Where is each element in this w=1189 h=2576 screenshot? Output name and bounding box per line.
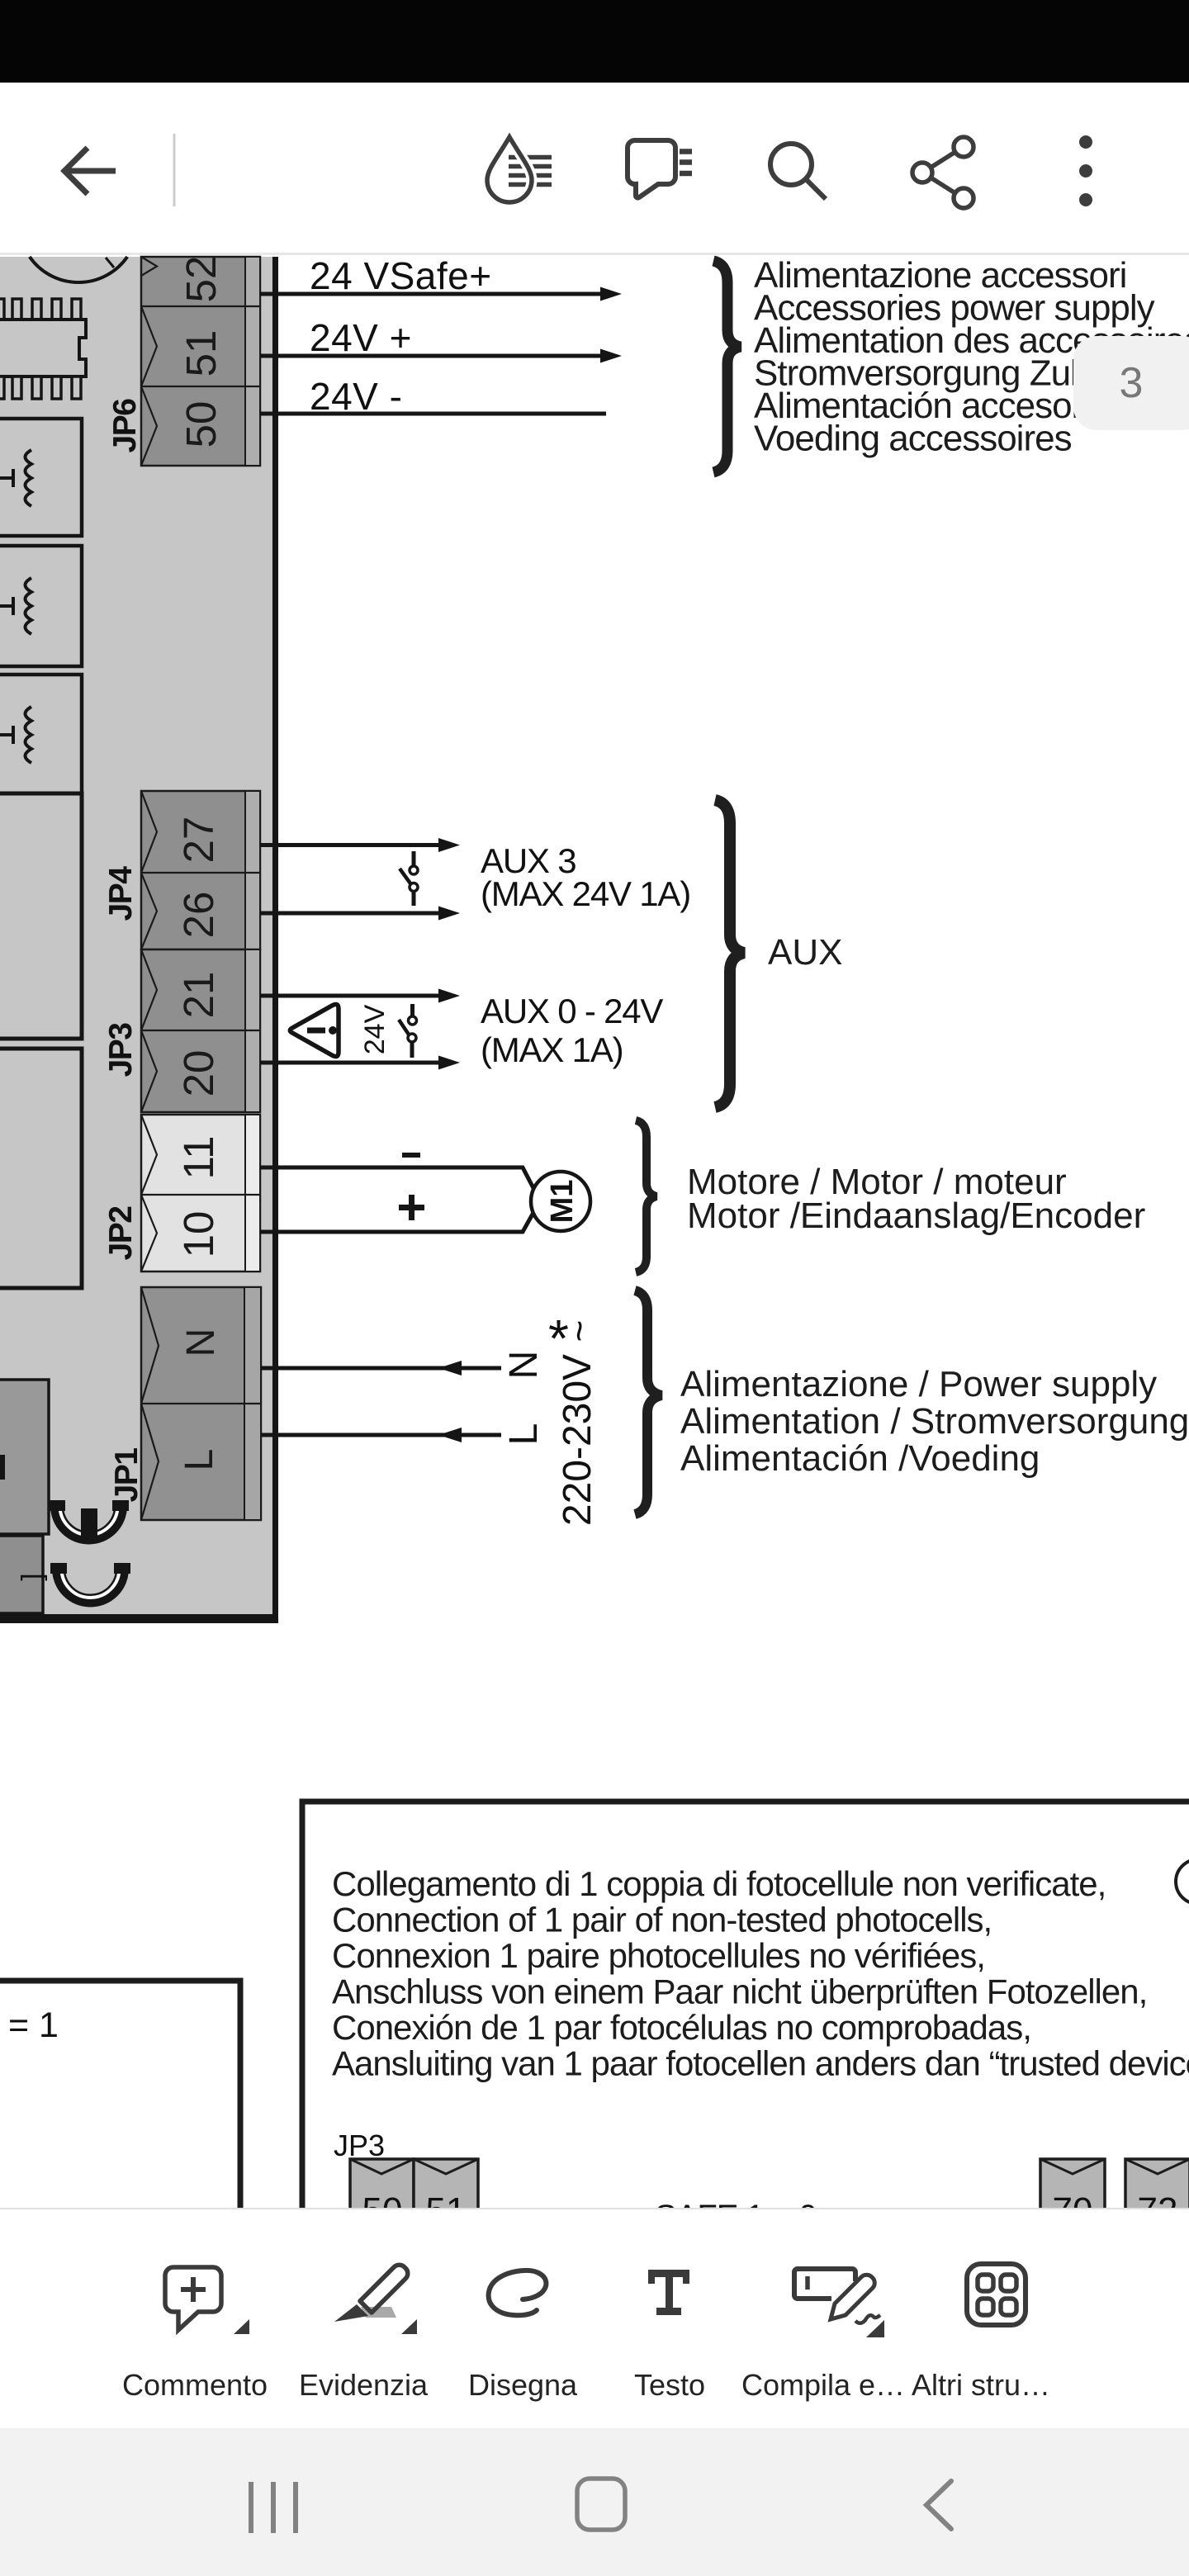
svg-text:]: ] <box>17 1573 48 1580</box>
svg-text:27: 27 <box>175 817 222 864</box>
svg-text:JP2: JP2 <box>103 1206 139 1261</box>
svg-text:52: 52 <box>178 256 225 303</box>
svg-text:Disegna: Disegna <box>468 2368 578 2402</box>
svg-text:Compila e…: Compila e… <box>741 2368 905 2402</box>
svg-text:JP6: JP6 <box>107 399 143 453</box>
svg-text:L: L <box>502 1423 546 1446</box>
svg-text:24V: 24V <box>359 1004 391 1054</box>
svg-text:Evidenzia: Evidenzia <box>299 2368 429 2402</box>
svg-text:AUX: AUX <box>768 932 842 973</box>
svg-text:Altri stru…: Altri stru… <box>912 2368 1050 2402</box>
svg-text:Connection of 1 pair of non-te: Connection of 1 pair of non-tested photo… <box>332 1901 992 1939</box>
svg-text:51: 51 <box>426 2190 467 2208</box>
svg-text:51: 51 <box>178 330 225 377</box>
svg-text:220-230V: 220-230V <box>556 1354 599 1526</box>
svg-text:Voeding accessoires: Voeding accessoires <box>754 419 1072 459</box>
svg-text:24V +: 24V + <box>310 316 412 359</box>
svg-text:JP3: JP3 <box>103 1023 139 1077</box>
svg-text:11: 11 <box>175 1136 222 1180</box>
svg-text:Connexion 1 paire photocellule: Connexion 1 paire photocellules no vérif… <box>332 1936 985 1975</box>
svg-text:Alimentación /Voeding: Alimentación /Voeding <box>680 1438 1040 1479</box>
svg-text:24V -: 24V - <box>310 375 402 418</box>
svg-text:20: 20 <box>175 1050 222 1097</box>
svg-text:Collegamento di 1 coppia di fo: Collegamento di 1 coppia di fotocellule … <box>332 1864 1106 1903</box>
svg-text:JP4: JP4 <box>103 866 139 921</box>
svg-text:AUX 0 - 24V: AUX 0 - 24V <box>481 992 663 1030</box>
svg-text:N: N <box>502 1351 546 1380</box>
svg-text:10: 10 <box>175 1211 222 1258</box>
svg-text:21: 21 <box>175 972 222 1019</box>
svg-text:Aansluiting van 1 paar fotocel: Aansluiting van 1 paar fotocellen anders… <box>332 2044 1189 2083</box>
svg-text:M1: M1 <box>545 1180 580 1224</box>
svg-text:N: N <box>179 1328 223 1357</box>
svg-text:= 1: = 1 <box>8 2005 59 2045</box>
svg-text:Alimentation / Stromversorgung: Alimentation / Stromversorgung <box>680 1401 1189 1442</box>
svg-text:Alimentazione / Power supply: Alimentazione / Power supply <box>680 1364 1157 1404</box>
svg-text:SAFE 1 = 0: SAFE 1 = 0 <box>655 2199 817 2208</box>
svg-text:L: L <box>178 1449 221 1471</box>
svg-text:~: ~ <box>557 1320 600 1342</box>
svg-text:JP3: JP3 <box>334 2129 385 2162</box>
svg-text:(MAX 1A): (MAX 1A) <box>481 1030 623 1069</box>
svg-text:50: 50 <box>362 2190 403 2208</box>
svg-text:Anschluss von einem Paar nicht: Anschluss von einem Paar nicht überprüft… <box>332 1972 1147 2011</box>
svg-text:Testo: Testo <box>634 2368 705 2402</box>
svg-text:Commento: Commento <box>122 2368 268 2402</box>
svg-text:Conexión de 1 par fotocélulas: Conexión de 1 par fotocélulas no comprob… <box>332 2008 1031 2047</box>
svg-text:26: 26 <box>175 892 222 939</box>
svg-text:JP1: JP1 <box>109 1448 144 1503</box>
svg-text:50: 50 <box>178 401 225 448</box>
svg-text:24 VSafe+: 24 VSafe+ <box>310 255 492 297</box>
svg-text:Motor /Eindaanslag/Encoder: Motor /Eindaanslag/Encoder <box>687 1196 1145 1236</box>
svg-text:70: 70 <box>1053 2190 1093 2208</box>
svg-text:72: 72 <box>1138 2190 1178 2208</box>
svg-text:(MAX 24V 1A): (MAX 24V 1A) <box>481 874 690 913</box>
